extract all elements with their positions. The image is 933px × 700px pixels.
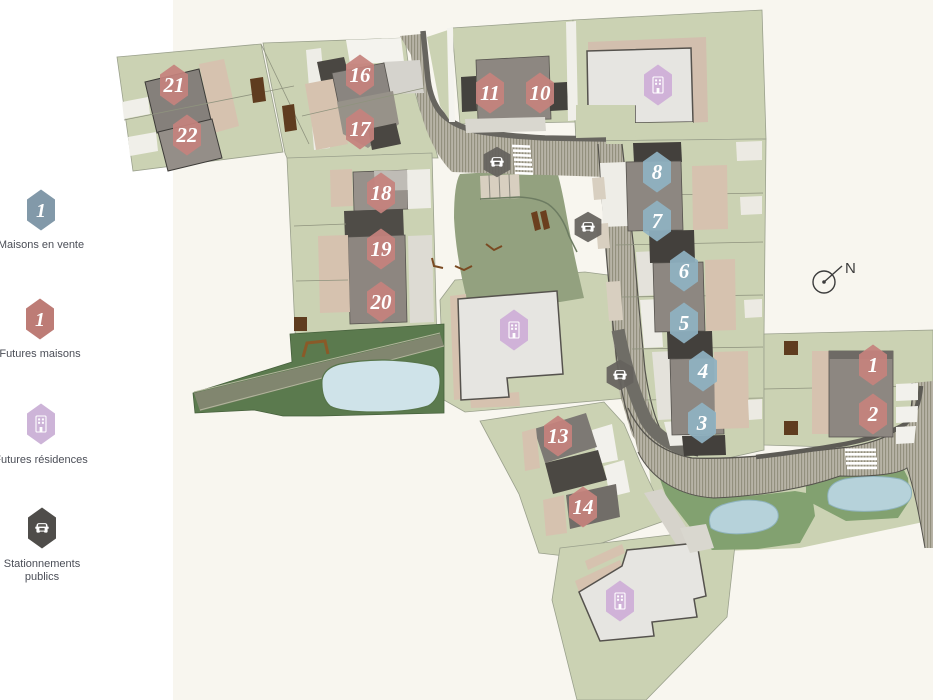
svg-text:Futures résidences: Futures résidences: [0, 454, 88, 466]
svg-text:1: 1: [36, 200, 46, 222]
svg-text:6: 6: [679, 259, 690, 283]
svg-text:publics: publics: [25, 571, 60, 583]
svg-text:19: 19: [371, 237, 393, 261]
svg-text:2: 2: [867, 402, 879, 426]
svg-text:20: 20: [370, 290, 393, 314]
svg-text:13: 13: [548, 424, 569, 448]
svg-text:16: 16: [350, 63, 372, 87]
svg-text:N: N: [845, 260, 856, 277]
svg-text:10: 10: [530, 81, 552, 105]
svg-text:Maisons en vente: Maisons en vente: [0, 239, 84, 251]
svg-text:22: 22: [176, 123, 199, 147]
svg-text:5: 5: [679, 311, 690, 335]
svg-text:7: 7: [652, 209, 664, 233]
svg-text:Stationnements: Stationnements: [4, 558, 81, 570]
svg-text:4: 4: [697, 359, 709, 383]
svg-text:11: 11: [480, 81, 500, 105]
svg-text:17: 17: [350, 117, 373, 141]
svg-text:1: 1: [868, 353, 879, 377]
svg-text:8: 8: [652, 160, 663, 184]
svg-text:Futures maisons: Futures maisons: [0, 348, 81, 360]
svg-text:14: 14: [573, 495, 594, 519]
svg-text:1: 1: [35, 309, 45, 331]
svg-text:21: 21: [163, 73, 185, 97]
svg-text:3: 3: [696, 411, 708, 435]
svg-text:18: 18: [371, 181, 393, 205]
